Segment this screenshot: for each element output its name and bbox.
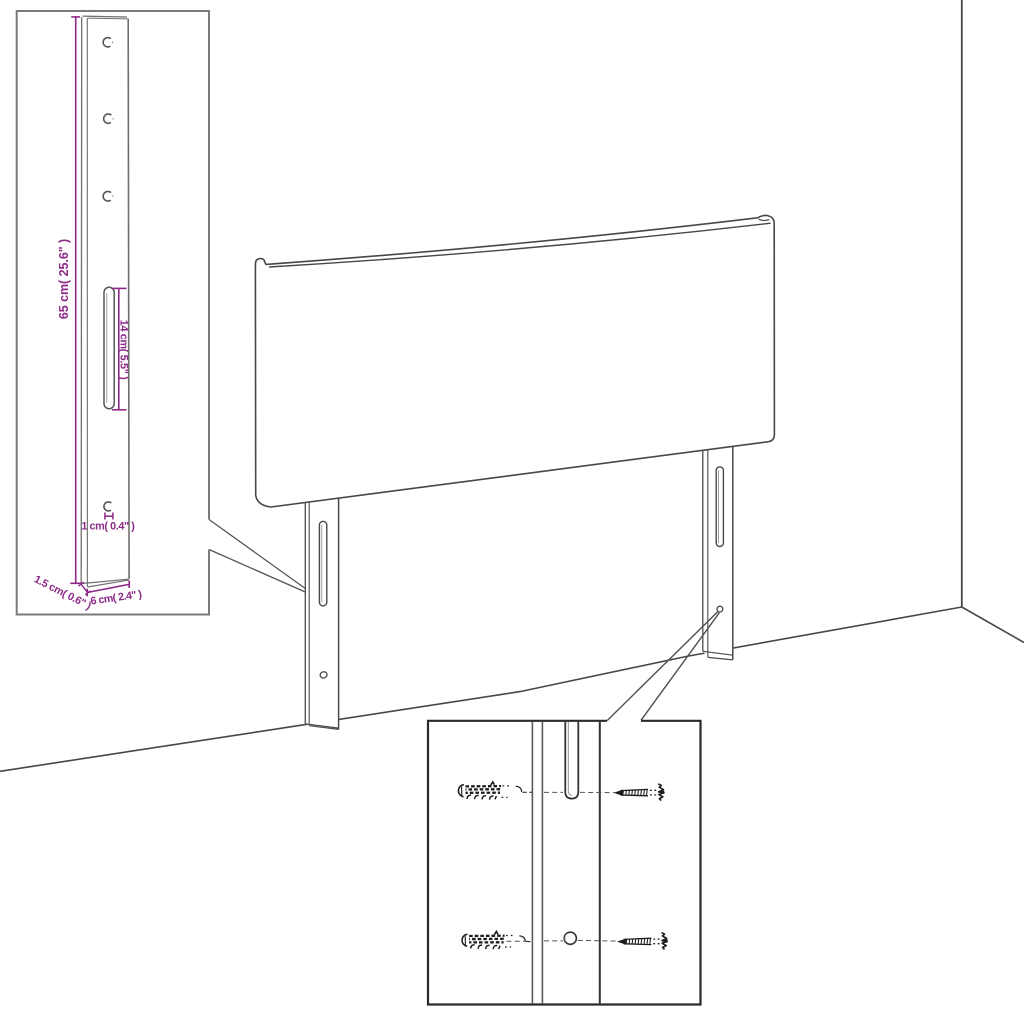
svg-text:65 cm( 25.6" ): 65 cm( 25.6" ) (57, 239, 71, 319)
svg-text:1 cm( 0.4" ): 1 cm( 0.4" ) (81, 520, 135, 532)
svg-text:14 cm( 5.5" ): 14 cm( 5.5" ) (118, 320, 130, 380)
